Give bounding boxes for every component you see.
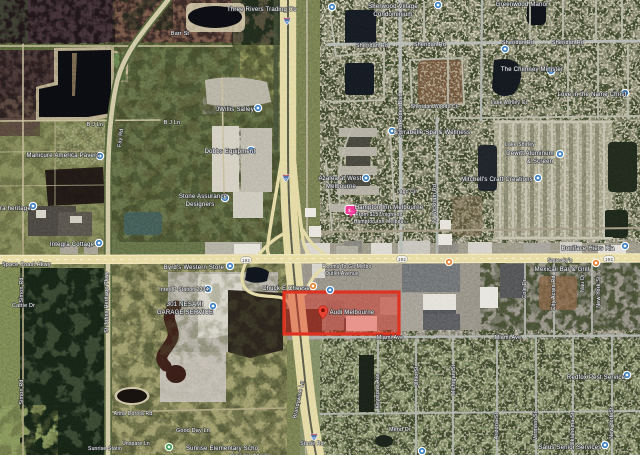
svg-text:Stone Assurance: Stone Assurance — [179, 194, 228, 200]
svg-text:Sunrise Elementary Scho: Sunrise Elementary Scho — [186, 446, 259, 452]
svg-text:Ohio St: Ohio St — [414, 366, 420, 386]
svg-text:Cattie Dr: Cattie Dr — [12, 303, 35, 309]
svg-text:Manicure America Pavers: Manicure America Pavers — [27, 153, 100, 159]
svg-text:Sheridan Rd: Sheridan Rd — [414, 42, 446, 48]
svg-text:Azalea at West: Azalea at West — [318, 176, 361, 182]
svg-text:Squeaky's: Squeaky's — [548, 258, 573, 264]
svg-text:Condominium: Condominium — [373, 12, 412, 18]
svg-text:City Acres Rd: City Acres Rd — [551, 275, 557, 310]
svg-text:Three Rivers Trading Co: Three Rivers Trading Co — [227, 7, 297, 13]
svg-text:Miami Ave: Miami Ave — [377, 335, 404, 341]
svg-text:Sheridan Woods Ct: Sheridan Woods Ct — [411, 104, 458, 110]
svg-text:Designers: Designers — [186, 202, 215, 208]
svg-text:B J Ln: B J Ln — [164, 120, 180, 126]
svg-text:Audi Melbourne: Audi Melbourne — [330, 310, 375, 316]
svg-text:Lake Shirley: Lake Shirley — [505, 142, 535, 148]
svg-text:Lago Cir: Lago Cir — [397, 189, 418, 195]
svg-text:Cole Dr: Cole Dr — [522, 279, 528, 299]
svg-text:Lake Ashley Ct: Lake Ashley Ct — [491, 100, 528, 106]
svg-text:John Rodes Blvd: John Rodes Blvd — [398, 93, 404, 137]
svg-text:Chuck E Cheese: Chuck E Cheese — [262, 286, 310, 292]
svg-text:Dobbs Equipment: Dobbs Equipment — [205, 149, 256, 155]
svg-text:Vermont St: Vermont St — [533, 411, 539, 440]
svg-text:Melbourne: Melbourne — [326, 184, 357, 190]
svg-text:Nau Dr: Nau Dr — [580, 274, 586, 292]
svg-text:Sheridan Rd: Sheridan Rd — [502, 40, 534, 46]
svg-text:Mend Dr: Mend Dr — [389, 427, 411, 433]
svg-text:Outlet Avenue: Outlet Avenue — [325, 271, 359, 277]
svg-text:Byrd's Western Store: Byrd's Western Store — [164, 265, 225, 271]
svg-text:Love in the Name Christ: Love in the Name Christ — [558, 92, 627, 98]
svg-text:Stasie Rd: Stasie Rd — [300, 441, 323, 447]
svg-text:Sunrise Statio: Sunrise Statio — [88, 446, 122, 452]
svg-text:301 NESAMI: 301 NESAMI — [167, 302, 204, 308]
svg-text:Arizona St: Arizona St — [494, 412, 500, 439]
svg-text:Good Day Ln: Good Day Ln — [176, 428, 210, 434]
svg-text:From $157/night on: From $157/night on — [356, 212, 403, 218]
svg-text:B J Ln: B J Ln — [87, 122, 103, 128]
svg-text:Hampton Inn Melbou...: Hampton Inn Melbou... — [354, 219, 409, 225]
svg-text:St Johns Heritage Pkwy: St Johns Heritage Pkwy — [104, 271, 110, 333]
svg-text:Michigan St: Michigan St — [451, 365, 457, 396]
svg-text:ra heritage: ra heritage — [0, 206, 31, 212]
svg-text:Rooms To Go Melbo: Rooms To Go Melbo — [323, 264, 372, 270]
svg-text:Integra Cottage: Integra Cottage — [50, 242, 95, 248]
svg-text:Interl P Station 2334: Interl P Station 2334 — [159, 287, 208, 293]
svg-text:Simon Rd: Simon Rd — [19, 277, 25, 302]
svg-text:New York St: New York St — [596, 276, 602, 308]
svg-text:Sheridan Rd: Sheridan Rd — [552, 40, 584, 46]
svg-text:Barr St: Barr St — [171, 31, 189, 37]
svg-text:JWillis Salley: JWillis Salley — [216, 107, 254, 113]
svg-text:The Chimney Minister: The Chimney Minister — [501, 67, 563, 73]
svg-text:Space Coast Hkwy: Space Coast Hkwy — [2, 262, 51, 268]
svg-text:New York St: New York St — [609, 407, 615, 439]
svg-text:Miami Ave: Miami Ave — [495, 335, 522, 341]
svg-text:Mexicali Bar & Grill: Mexicali Bar & Grill — [535, 267, 590, 273]
svg-text:Anna Dorota Rd: Anna Dorota Rd — [114, 411, 153, 417]
svg-text:Sherwood Village: Sherwood Village — [368, 4, 418, 10]
svg-text:Sheridan Rd: Sheridan Rd — [356, 43, 388, 49]
svg-text:Boniface Hiers Kia: Boniface Hiers Kia — [562, 246, 615, 252]
svg-text:Greenwood Manor: Greenwood Manor — [496, 2, 549, 8]
svg-text:& Screen: & Screen — [527, 159, 553, 165]
svg-text:Keystone Ave: Keystone Ave — [375, 373, 381, 408]
svg-text:Hampton Inn Melbourne: Hampton Inn Melbourne — [355, 205, 424, 211]
svg-text:Mitchell's Craft Creations: Mitchell's Craft Creations — [461, 177, 533, 183]
svg-text:Dewitt Aluminum: Dewitt Aluminum — [506, 151, 554, 157]
svg-text:Carrabelle Spa & Wellness: Carrabelle Spa & Wellness — [394, 130, 471, 136]
svg-text:N Wickham Rd: N Wickham Rd — [432, 184, 438, 222]
svg-text:GARAGE SERVICE: GARAGE SERVICE — [157, 310, 213, 316]
svg-text:Unspare Ln: Unspare Ln — [122, 441, 150, 447]
svg-text:Redfox Pest Service: Redfox Pest Service — [567, 375, 626, 381]
svg-text:Oklahoma St: Oklahoma St — [570, 412, 576, 446]
svg-text:Simon Rd: Simon Rd — [19, 379, 25, 404]
